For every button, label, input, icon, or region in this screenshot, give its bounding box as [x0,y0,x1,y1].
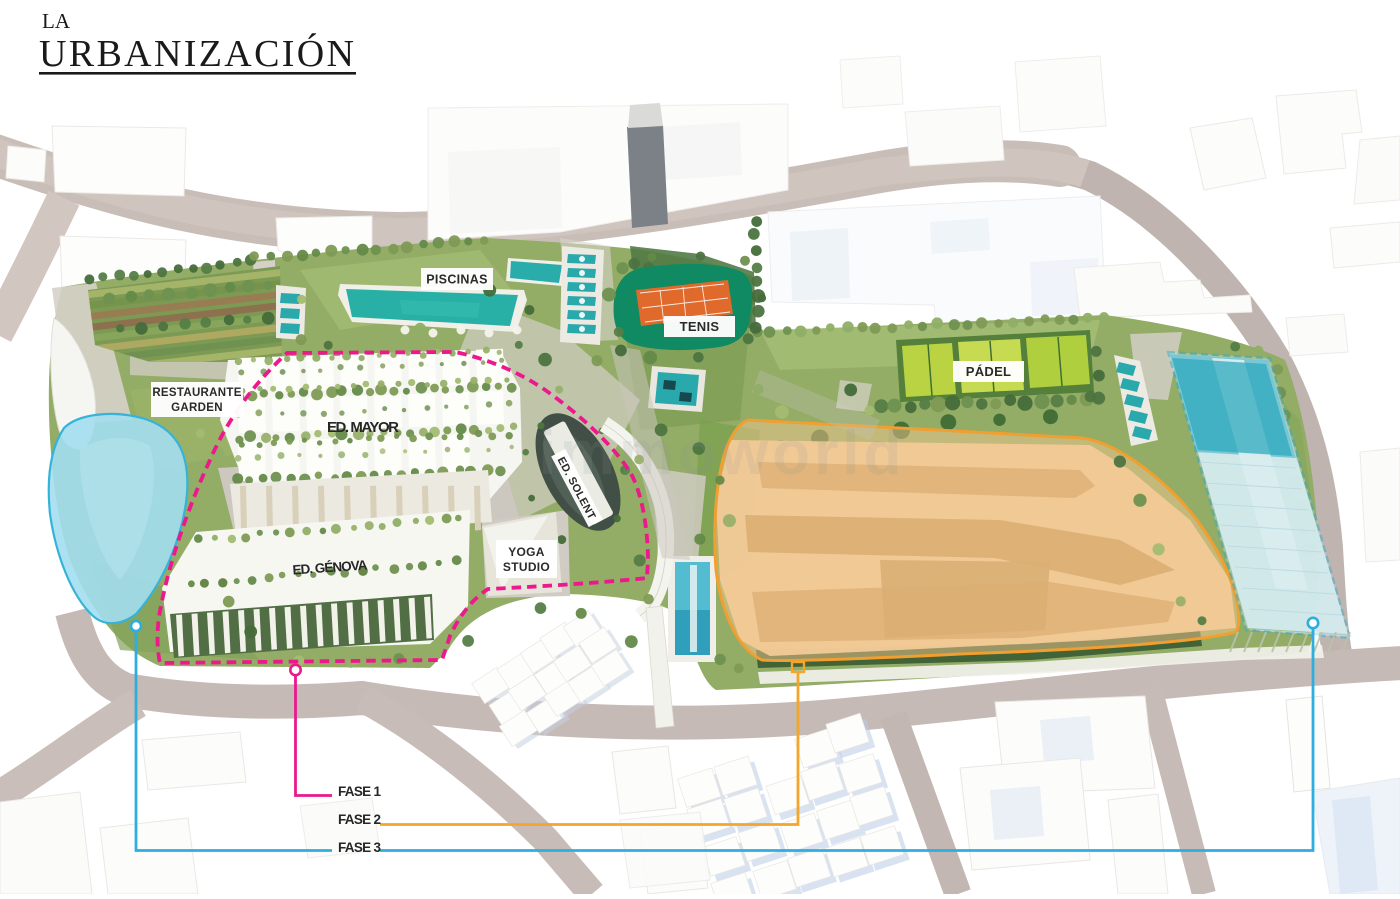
svg-text:PÁDEL: PÁDEL [966,364,1012,379]
svg-text:ED. MAYOR: ED. MAYOR [327,419,399,436]
svg-text:FASE 2: FASE 2 [338,812,381,827]
svg-text:YOGA: YOGA [508,545,545,559]
svg-text:GARDEN: GARDEN [171,402,223,414]
svg-text:STUDIO: STUDIO [503,560,550,574]
svg-text:TENIS: TENIS [680,319,720,334]
svg-text:RESTAURANTE: RESTAURANTE [152,387,241,399]
svg-text:FASE 1: FASE 1 [338,784,381,799]
svg-text:FASE 3: FASE 3 [338,840,381,855]
svg-text:LA: LA [42,9,71,33]
svg-text:PISCINAS: PISCINAS [426,273,487,287]
